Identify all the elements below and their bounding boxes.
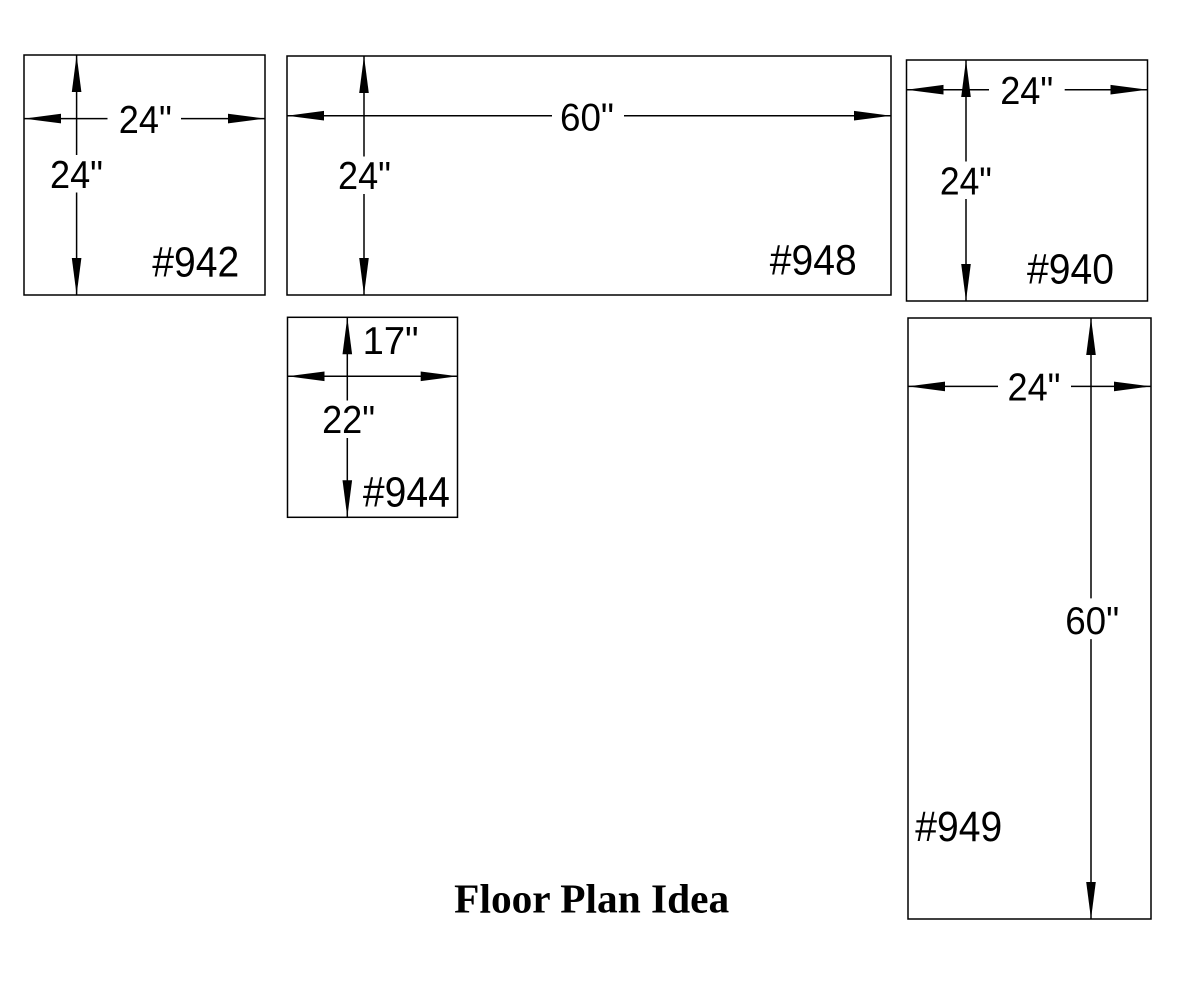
svg-text:#940: #940 — [1027, 246, 1114, 294]
svg-text:24": 24" — [1000, 70, 1053, 113]
svg-text:22": 22" — [322, 399, 375, 442]
svg-text:24": 24" — [50, 154, 103, 197]
svg-text:60": 60" — [1065, 600, 1119, 643]
svg-text:24": 24" — [119, 99, 172, 142]
svg-text:24": 24" — [1008, 366, 1061, 409]
svg-text:17": 17" — [363, 320, 419, 363]
svg-text:#948: #948 — [770, 237, 857, 285]
svg-text:60": 60" — [560, 97, 614, 140]
svg-text:#949: #949 — [915, 803, 1002, 851]
svg-text:24": 24" — [338, 155, 391, 198]
svg-text:24": 24" — [940, 161, 992, 204]
svg-text:Floor Plan Idea: Floor Plan Idea — [454, 876, 729, 922]
svg-text:#942: #942 — [152, 239, 239, 287]
svg-text:#944: #944 — [363, 468, 450, 516]
